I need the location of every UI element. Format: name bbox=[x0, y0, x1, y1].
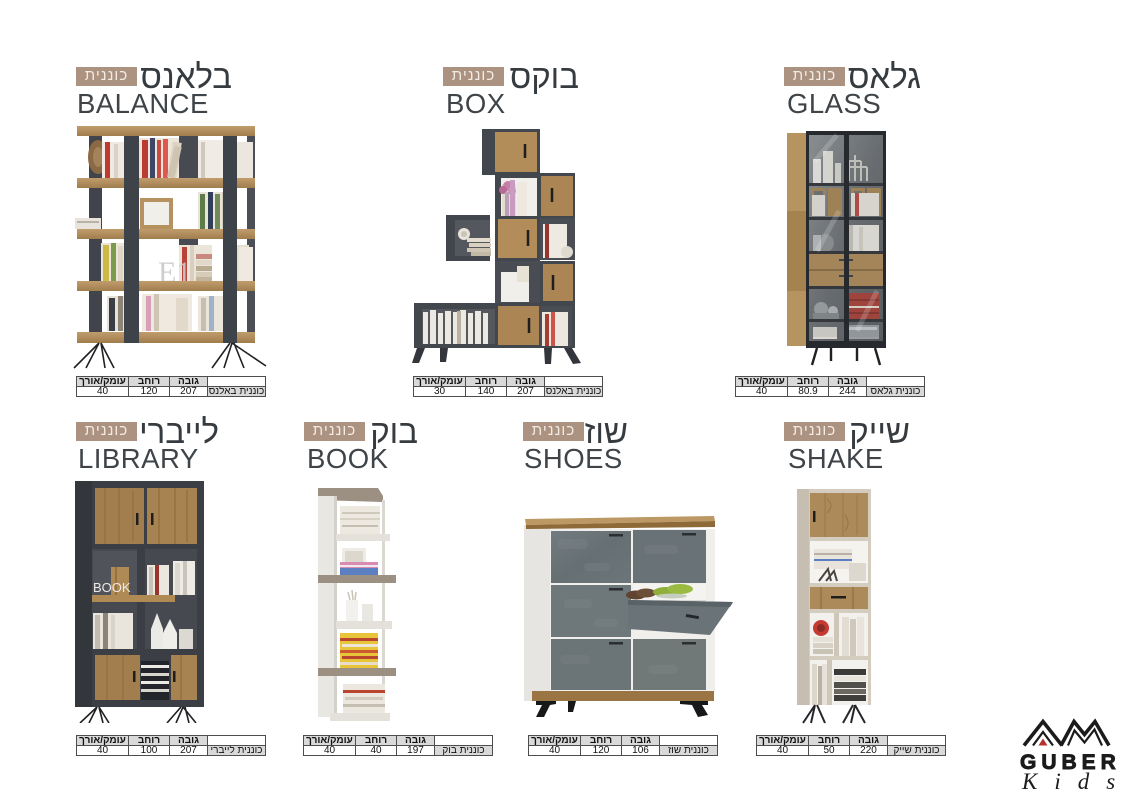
svg-text:Kids: Kids bbox=[1021, 769, 1118, 794]
svg-text:BOOK: BOOK bbox=[93, 580, 131, 595]
